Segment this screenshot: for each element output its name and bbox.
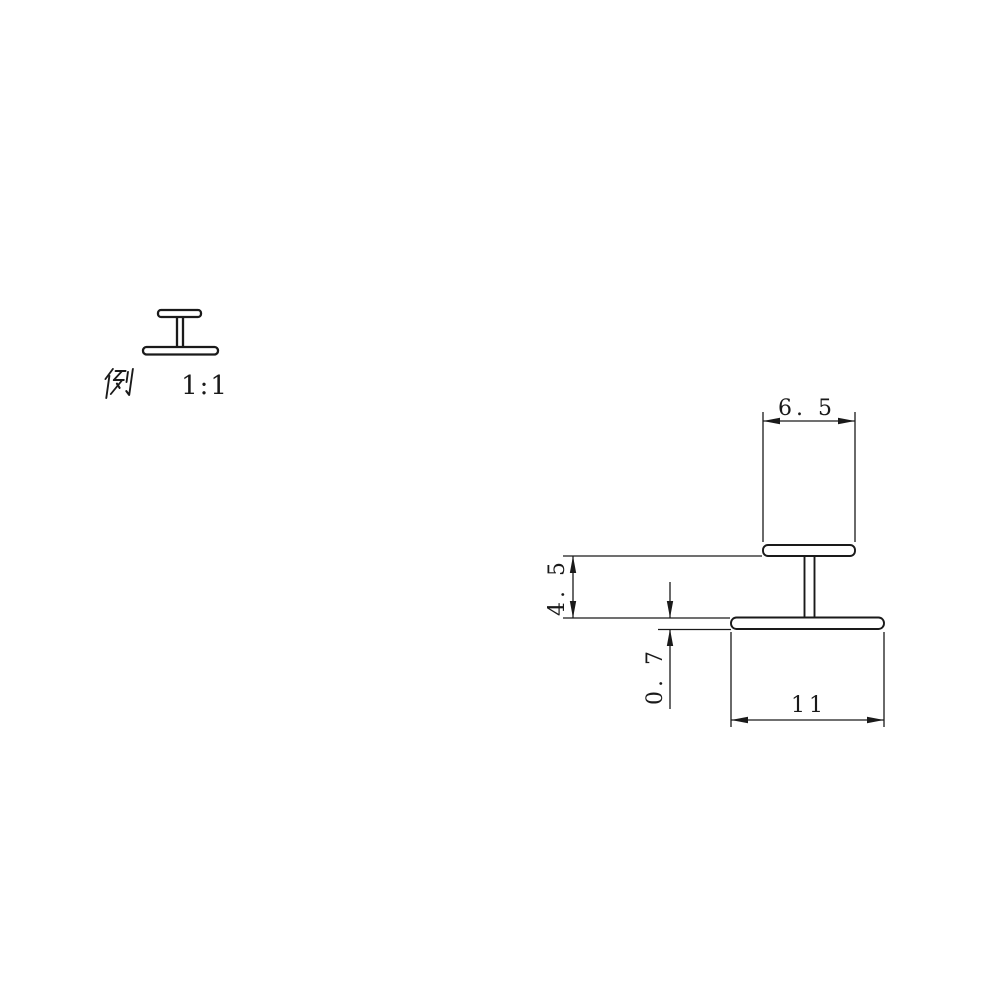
profile-top-flange xyxy=(763,545,855,556)
dimension-top-flange-width: 6. 5 xyxy=(763,396,855,542)
arrowhead-up-icon xyxy=(570,556,576,573)
legend-example-character xyxy=(103,369,133,398)
dimension-flange-thickness: 0. 7 xyxy=(643,582,731,709)
profile-bottom-flange xyxy=(731,618,884,630)
legend-bottom-flange xyxy=(143,347,218,355)
arrowhead-up-icon xyxy=(667,629,673,646)
dimension-value: 11 xyxy=(791,693,827,718)
dimension-value: 0. 7 xyxy=(643,647,668,705)
arrowhead-down-icon xyxy=(667,601,673,618)
dimension-value: 4. 5 xyxy=(545,558,570,616)
legend-top-flange xyxy=(158,310,201,317)
legend-scale-text: 1:1 xyxy=(181,371,229,401)
arrowhead-right-icon xyxy=(867,717,884,723)
legend: 1:1 xyxy=(103,310,229,401)
legend-profile-symbol xyxy=(143,310,218,355)
profile-outline xyxy=(731,545,884,629)
cad-drawing: 1:1 6. 5 4. 5 xyxy=(0,0,1000,1000)
dimension-web-height: 4. 5 xyxy=(545,556,762,618)
arrowhead-down-icon xyxy=(570,601,576,618)
dimension-bottom-flange-width: 11 xyxy=(731,632,884,727)
drawing-sheet: 1:1 6. 5 4. 5 xyxy=(0,0,1000,1000)
dimension-value: 6. 5 xyxy=(778,396,836,421)
arrowhead-left-icon xyxy=(731,717,748,723)
arrowhead-right-icon xyxy=(838,418,855,424)
